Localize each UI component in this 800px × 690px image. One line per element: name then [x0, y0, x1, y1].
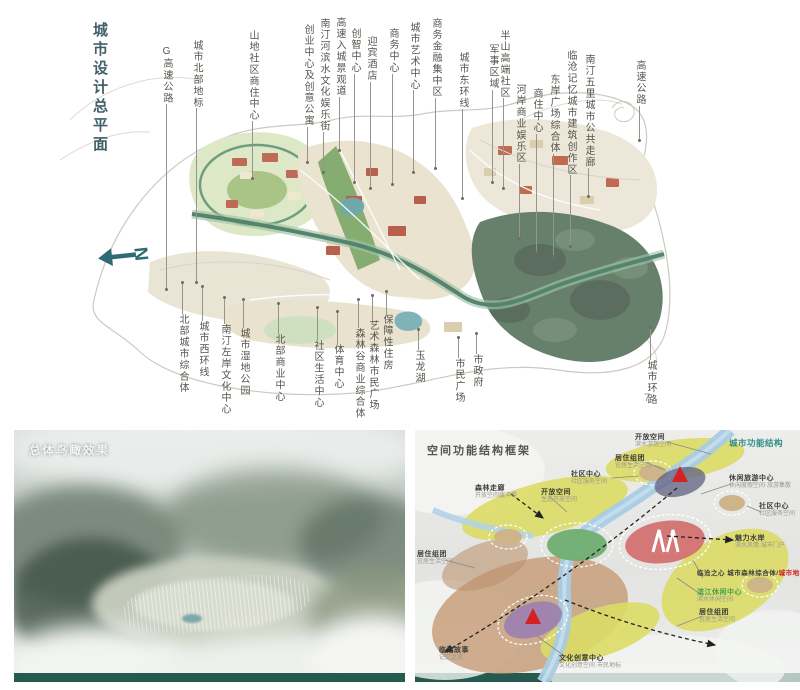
- plan-callout-bottom-6: 体育中心: [331, 312, 343, 390]
- leader-line: [570, 175, 571, 246]
- plan-callout-top-11: 城市东环线: [456, 52, 468, 198]
- leader-line: [639, 106, 640, 140]
- plan-callout-label: 艺术森林市民广场: [367, 320, 377, 411]
- plan-callout-top-7: 迎宾酒店: [364, 36, 376, 188]
- north-arrow-icon: N: [94, 235, 149, 276]
- leader-line: [503, 98, 504, 188]
- plan-callout-label: 军事区域: [487, 44, 497, 90]
- plan-callout-top-9: 城市艺术中心: [407, 22, 419, 172]
- plan-callout-label: 半山高端社区: [498, 30, 508, 98]
- structure-label-14: 文化创意中心文化创意空间·市民地标: [559, 654, 621, 671]
- leader-line: [536, 134, 537, 252]
- aerial-title: 总体鸟瞰效果: [29, 442, 110, 458]
- plan-callout-top-19: 高速公路: [633, 60, 645, 140]
- structure-label-sub: 文化创意空间·市民地标: [559, 663, 621, 671]
- leader-line: [418, 330, 419, 350]
- plan-callout-label: 城市北部地标: [191, 40, 201, 108]
- master-plan-map: [0, 0, 800, 425]
- plan-callout-bottom-0: 北部城市综合体: [176, 283, 188, 394]
- structure-title: 空间功能结构框架: [427, 442, 531, 458]
- structure-label-sub: 宜居生活空间: [699, 617, 735, 625]
- structure-label-13: 临沧故事记忆之旅: [439, 646, 469, 663]
- plan-callout-top-15: 商住中心: [530, 88, 542, 252]
- structure-label-6: 森林走廊开放空间缓冲带: [475, 484, 517, 501]
- plan-callout-bottom-10: 玉龙湖: [412, 330, 424, 384]
- structure-label-sub: 生态开放空间: [541, 497, 577, 505]
- plan-callout-top-8: 商务中心: [386, 28, 398, 184]
- plan-callout-top-2: 山地社区商住中心: [246, 30, 258, 178]
- plan-callout-bottom-3: 城市湿地公园: [237, 300, 249, 396]
- plan-callout-label: 体育中心: [332, 344, 342, 390]
- plan-callout-label: 高速公路: [634, 60, 644, 106]
- structure-label-main: 居住组团: [615, 455, 645, 462]
- plan-callout-bottom-1: 城市西环线: [196, 287, 208, 378]
- structure-label-1: 城市功能结构: [729, 438, 783, 449]
- urban-design-page: 城市设计总平面 N G高速公路城市北部地标山地社区商住中心创业中心及创意公寓南汀…: [0, 0, 800, 690]
- plan-callout-label: 市政府: [471, 354, 481, 388]
- structure-label-sub: 社区服务空间: [571, 479, 607, 487]
- master-plan-section: 城市设计总平面 N G高速公路城市北部地标山地社区商住中心创业中心及创意公寓南汀…: [0, 0, 800, 425]
- plan-callout-label: 创业中心及创意公寓: [302, 24, 312, 127]
- plan-callout-label: G高速公路: [161, 46, 171, 104]
- leader-line: [392, 74, 393, 184]
- plan-callout-label: 北部城市综合体: [177, 314, 187, 394]
- plan-callout-bottom-2: 南汀左岸文化中心: [218, 298, 230, 415]
- structure-label-main: 森林走廊: [475, 485, 505, 492]
- plan-callout-bottom-12: 市政府: [470, 334, 482, 388]
- leader-line: [202, 287, 203, 321]
- plan-callout-label: 社区生活中心: [312, 340, 322, 408]
- structure-label-main: 开放空间: [635, 434, 665, 441]
- plan-callout-top-14: 河岸商业娱乐区: [513, 84, 525, 238]
- leader-line: [354, 74, 355, 182]
- plan-callout-top-0: G高速公路: [160, 46, 172, 289]
- structure-label-main: 居住组团: [417, 551, 447, 558]
- structure-label-sub: 社区服务空间: [759, 511, 795, 519]
- leader-line: [462, 109, 463, 198]
- plan-callout-label: 商务中心: [387, 28, 397, 74]
- plan-callout-label: 市民广场: [453, 358, 463, 404]
- plan-callout-label: 南汀河滨水文化娱乐街: [318, 18, 328, 132]
- structure-label-main: 城市功能结构: [729, 438, 783, 448]
- leader-line: [224, 298, 225, 324]
- lake-blob: [182, 614, 202, 623]
- leader-line: [323, 132, 324, 172]
- plan-callout-bottom-5: 社区生活中心: [311, 308, 323, 408]
- plan-callout-label: 山地社区商住中心: [247, 30, 257, 121]
- leader-line: [317, 308, 318, 340]
- plan-callout-top-18: 南汀五里城市公共走廊: [582, 54, 594, 196]
- leader-line: [252, 121, 253, 178]
- plan-callout-top-13: 半山高端社区: [497, 30, 509, 188]
- leader-line: [435, 98, 436, 168]
- leader-line: [358, 300, 359, 328]
- leader-line: [458, 338, 459, 358]
- structure-label-sub: 宜居生活空间: [615, 463, 651, 471]
- plan-callout-top-17: 临沧记忆城市建筑创作区: [564, 50, 576, 246]
- plan-callout-label: 临沧记忆城市建筑创作区: [565, 50, 575, 175]
- structure-label-main: 临沧之心 城市森林综合体/: [697, 570, 779, 577]
- plan-callout-bottom-11: 市民广场: [452, 338, 464, 404]
- plan-callout-top-4: 南汀河滨水文化娱乐街: [317, 18, 329, 172]
- plan-callout-bottom-7: 森林谷商业综合体: [352, 300, 364, 419]
- structure-label-2: 居住组团宜居生活空间: [615, 454, 651, 471]
- structure-label-sub: 滨水休闲空间: [697, 597, 742, 605]
- plan-callout-label: 森林谷商业综合体: [353, 328, 363, 419]
- leader-line: [243, 300, 244, 328]
- structure-label-main: 休闲旅游中心: [729, 475, 774, 482]
- plan-callout-label: 城市东环线: [457, 52, 467, 109]
- structure-label-sub: 滨水游憩空间: [635, 442, 671, 450]
- plan-callout-bottom-4: 北部商业中心: [272, 304, 284, 402]
- panel-bottom-bar: [14, 673, 405, 682]
- structure-label-7: 开放空间生态开放空间: [541, 488, 577, 505]
- leader-line: [492, 90, 493, 182]
- plan-callout-top-10: 商务金融集中区: [429, 18, 441, 168]
- plan-callout-bottom-13: 城市环路: [644, 328, 656, 406]
- structure-label-main: 居住组团: [699, 609, 729, 616]
- structure-label-sub: 宜居生活空间: [417, 559, 453, 567]
- structure-label-8: 居住组团宜居生活空间: [417, 550, 453, 567]
- plan-callout-label: 城市环路: [645, 360, 655, 406]
- plan-callout-label: 商住中心: [531, 88, 541, 134]
- plan-callout-label: 高速入城景观道: [334, 17, 344, 97]
- leader-line: [337, 312, 338, 344]
- plan-callout-top-16: 东岸广场综合体: [547, 74, 559, 256]
- structure-label-main: 魅力水岸: [735, 535, 765, 542]
- plan-callout-label: 南汀五里城市公共走廊: [583, 54, 593, 168]
- plan-callout-label: 南汀左岸文化中心: [219, 324, 229, 415]
- plan-callout-top-3: 创业中心及创意公寓: [301, 24, 313, 162]
- plan-callout-label: 城市西环线: [197, 321, 207, 378]
- structure-label-12: 居住组团宜居生活空间: [699, 608, 735, 625]
- leader-line: [588, 168, 589, 196]
- structure-labels: 开放空间滨水游憩空间城市功能结构居住组团宜居生活空间社区中心社区服务空间休闲旅游…: [415, 430, 800, 682]
- leader-line: [278, 304, 279, 334]
- plan-callout-top-5: 高速入城景观道: [333, 17, 345, 150]
- structure-label-main: 滨江休闲中心: [697, 589, 742, 596]
- plan-callout-label: 玉龙湖: [413, 350, 423, 384]
- page-title: 城市设计总平面: [92, 22, 107, 155]
- aerial-panel: 总体鸟瞰效果: [14, 430, 405, 682]
- plan-callout-label: 商务金融集中区: [430, 18, 440, 98]
- leader-line: [413, 90, 414, 172]
- leader-line: [339, 97, 340, 150]
- plan-callout-bottom-9: 保障性住房: [380, 292, 392, 371]
- structure-label-main: 开放空间: [541, 489, 571, 496]
- leader-line: [650, 328, 651, 360]
- structure-label-main: 社区中心: [571, 471, 601, 478]
- structure-label-5: 社区中心社区服务空间: [759, 502, 795, 519]
- leader-line: [372, 296, 373, 320]
- plan-callout-label: 迎宾酒店: [365, 36, 375, 82]
- leader-line: [519, 164, 520, 238]
- leader-line: [476, 334, 477, 354]
- plan-callout-label: 北部商业中心: [273, 334, 283, 402]
- leader-line: [307, 127, 308, 162]
- leader-line: [370, 82, 371, 188]
- plan-callout-label: 城市湿地公园: [238, 328, 248, 396]
- structure-panel: 空间功能结构框架 开放空间滨水游憩空间城市功能结构居住组团宜居生活空间社区中心社…: [415, 430, 800, 682]
- plan-callout-label: 东岸广场综合体: [548, 74, 558, 154]
- leader-line: [553, 154, 554, 256]
- plan-callout-label: 保障性住房: [381, 314, 391, 371]
- leader-line: [182, 283, 183, 314]
- structure-label-3: 社区中心社区服务空间: [571, 470, 607, 487]
- structure-label-main: 社区中心: [759, 503, 789, 510]
- structure-label-sub: 休闲度假空间·旅游集散: [729, 483, 791, 491]
- leader-line: [166, 104, 167, 289]
- plan-callout-label: 创智中心: [349, 28, 359, 74]
- plan-callout-top-1: 城市北部地标: [190, 40, 202, 282]
- structure-label-main: 临沧故事: [439, 647, 469, 654]
- structure-label-9: 魅力水岸滨水风情·城市门户: [735, 534, 785, 551]
- plan-callout-bottom-8: 艺术森林市民广场: [366, 296, 378, 411]
- structure-label-main: 文化创意中心: [559, 655, 604, 662]
- structure-label-4: 休闲旅游中心休闲度假空间·旅游集散: [729, 474, 791, 491]
- structure-label-sub: 记忆之旅: [439, 655, 469, 663]
- plan-callout-label: 城市艺术中心: [408, 22, 418, 90]
- svg-text:N: N: [129, 246, 150, 262]
- structure-label-highlight: 城市地标: [779, 570, 800, 577]
- structure-label-10: 临沧之心 城市森林综合体/城市地标: [697, 570, 800, 578]
- plan-callout-top-6: 创智中心: [348, 28, 360, 182]
- structure-label-sub: 开放空间缓冲带: [475, 493, 517, 501]
- plan-callout-label: 河岸商业娱乐区: [514, 84, 524, 164]
- leader-line: [386, 292, 387, 314]
- structure-label-0: 开放空间滨水游憩空间: [635, 433, 671, 450]
- structure-label-sub: 滨水风情·城市门户: [735, 543, 785, 551]
- leader-line: [196, 108, 197, 282]
- structure-label-11: 滨江休闲中心滨水休闲空间: [697, 588, 742, 605]
